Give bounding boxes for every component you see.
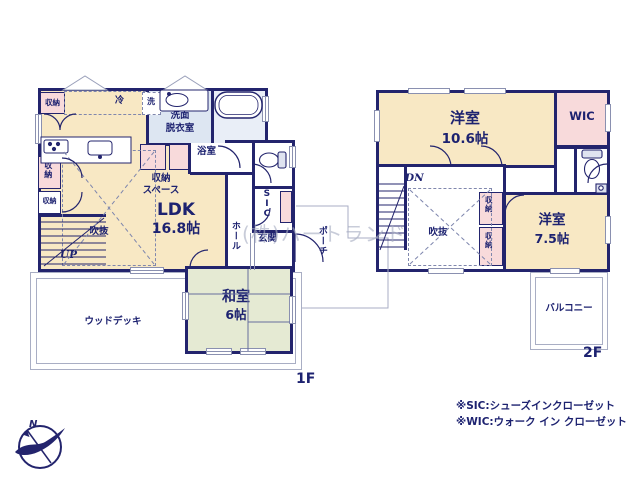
ldk-size: 16.8帖 xyxy=(145,222,207,237)
fridge-space xyxy=(64,91,146,115)
ldk-name: LDK xyxy=(145,201,207,220)
balcony-label: バルコニー xyxy=(540,304,598,314)
storage-space-b xyxy=(169,144,189,170)
void-label-2f: 吹抜 xyxy=(424,228,452,238)
washitsu-size: 6帖 xyxy=(214,308,258,322)
room-bedroom-large xyxy=(376,90,558,168)
window xyxy=(35,114,42,144)
legend-sic-note: ※SIC:シューズインクローゼット xyxy=(456,398,615,413)
floor2-label: 2F xyxy=(583,346,602,361)
window xyxy=(289,146,296,168)
washroom-label1: 洗面 xyxy=(165,111,195,121)
window xyxy=(240,348,266,355)
washer-label: 洗 xyxy=(147,98,155,107)
bedroom-large-size: 10.6帖 xyxy=(435,132,495,147)
void-label-1f: 吹抜 xyxy=(85,227,113,237)
room-bathroom xyxy=(211,88,268,146)
window xyxy=(182,292,189,320)
bedroom-small-name: 洋室 xyxy=(526,213,578,228)
window xyxy=(130,267,164,274)
wall xyxy=(190,172,254,175)
wall xyxy=(252,186,295,189)
window xyxy=(408,88,450,94)
floorplan-canvas: ウッドデッキ 収納 冷 洗 収納 スペース 収納 収納 LDK 16.8帖 吹抜… xyxy=(0,0,640,480)
wic-label: WIC xyxy=(563,110,601,123)
fridge-label: 冷 xyxy=(115,97,124,107)
window xyxy=(550,268,580,274)
compass-icon: N xyxy=(15,419,65,468)
window xyxy=(428,268,464,274)
floor1-label: 1F xyxy=(296,372,315,387)
window xyxy=(262,96,269,122)
closet-kitchen-label: 収納 xyxy=(41,99,64,107)
watermark: (株)ハートランド xyxy=(242,218,407,247)
wall xyxy=(574,146,577,198)
bedroom-small-size: 7.5帖 xyxy=(526,232,578,246)
bathroom-label: 浴室 xyxy=(197,147,216,157)
window xyxy=(464,88,506,94)
stairs-up-label: UP xyxy=(60,250,77,262)
washitsu-name: 和室 xyxy=(214,290,258,305)
washroom-label2: 脱衣室 xyxy=(161,124,199,134)
stairs-dn-label: DN xyxy=(405,173,424,185)
wood-deck-label: ウッドデッキ xyxy=(82,317,144,327)
sic-label: SIC xyxy=(261,189,271,219)
window xyxy=(605,216,611,244)
closet-left-lower-label: 収納 xyxy=(39,198,60,206)
legend-wic-note: ※WIC:ウォーク イン クローゼット xyxy=(456,414,627,429)
closet-left-upper-label: 収納 xyxy=(43,161,52,179)
window xyxy=(289,296,296,324)
compass-north-label: N xyxy=(29,419,38,430)
bedroom-large-name: 洋室 xyxy=(437,110,493,127)
void-area-2f xyxy=(408,188,492,266)
hall-label: ホール xyxy=(229,221,239,251)
window xyxy=(206,348,232,355)
window xyxy=(605,104,611,132)
room-toilet-2f xyxy=(554,146,610,198)
window xyxy=(374,110,380,142)
